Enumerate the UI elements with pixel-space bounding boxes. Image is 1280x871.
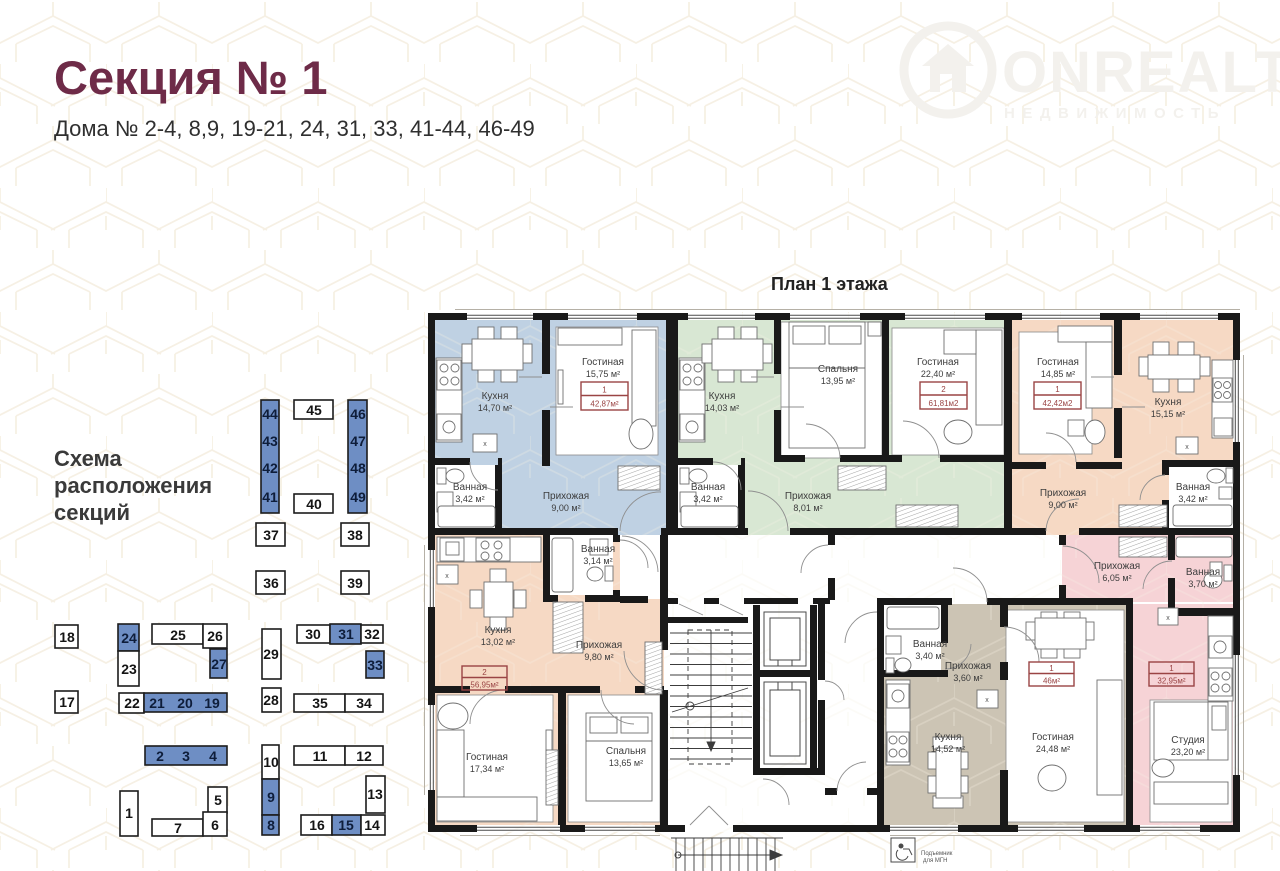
svg-text:3,70 м²: 3,70 м² xyxy=(1188,579,1217,589)
svg-text:47: 47 xyxy=(350,433,366,449)
svg-text:15,15 м²: 15,15 м² xyxy=(1151,409,1185,419)
svg-text:49: 49 xyxy=(350,489,366,505)
svg-text:x: x xyxy=(445,573,449,580)
svg-text:13,65 м²: 13,65 м² xyxy=(609,758,643,768)
svg-text:9: 9 xyxy=(267,789,275,805)
svg-text:9,00 м²: 9,00 м² xyxy=(1048,500,1077,510)
svg-text:24,48 м²: 24,48 м² xyxy=(1036,744,1070,754)
svg-text:3,42 м²: 3,42 м² xyxy=(1178,494,1207,504)
svg-text:22,40 м²: 22,40 м² xyxy=(921,369,955,379)
svg-text:x: x xyxy=(1185,444,1189,451)
svg-text:3,42 м²: 3,42 м² xyxy=(455,494,484,504)
svg-text:29: 29 xyxy=(263,646,279,662)
svg-text:3,42 м²: 3,42 м² xyxy=(693,494,722,504)
svg-text:8,01 м²: 8,01 м² xyxy=(793,503,822,513)
svg-text:56,95м²: 56,95м² xyxy=(470,681,499,690)
svg-text:2: 2 xyxy=(156,748,164,764)
svg-text:26: 26 xyxy=(207,628,223,644)
svg-text:x: x xyxy=(483,441,487,448)
svg-text:Гостиная: Гостиная xyxy=(1032,732,1074,743)
svg-text:1: 1 xyxy=(1169,664,1174,673)
svg-text:Студия: Студия xyxy=(1171,735,1204,746)
svg-text:Ванная: Ванная xyxy=(581,544,615,555)
svg-text:36: 36 xyxy=(263,575,279,591)
svg-text:1: 1 xyxy=(1049,664,1054,673)
svg-text:7: 7 xyxy=(174,820,182,836)
svg-text:Прихожая: Прихожая xyxy=(543,491,589,502)
svg-text:Гостиная: Гостиная xyxy=(582,357,624,368)
svg-text:14: 14 xyxy=(364,817,380,833)
svg-text:9,00 м²: 9,00 м² xyxy=(551,503,580,513)
svg-text:Секция № 1: Секция № 1 xyxy=(54,51,327,104)
svg-text:Ванная: Ванная xyxy=(453,482,487,493)
svg-text:НЕДВИЖИМОСТЬ: НЕДВИЖИМОСТЬ xyxy=(1004,105,1226,122)
svg-text:Ванная: Ванная xyxy=(913,639,947,650)
svg-text:x: x xyxy=(1166,615,1170,622)
svg-text:3: 3 xyxy=(182,748,190,764)
svg-text:15,75 м²: 15,75 м² xyxy=(586,369,620,379)
svg-text:13,02 м²: 13,02 м² xyxy=(481,637,515,647)
svg-text:План 1 этажа: План 1 этажа xyxy=(771,274,889,294)
svg-text:14,70 м²: 14,70 м² xyxy=(478,403,512,413)
svg-text:46м²: 46м² xyxy=(1043,677,1060,686)
svg-text:18: 18 xyxy=(59,629,75,645)
svg-text:15: 15 xyxy=(338,817,354,833)
svg-text:42,42м2: 42,42м2 xyxy=(1043,399,1074,408)
svg-text:Прихожая: Прихожая xyxy=(945,661,991,672)
svg-text:31: 31 xyxy=(338,626,354,642)
svg-text:Схема: Схема xyxy=(54,446,123,471)
svg-text:45: 45 xyxy=(306,402,322,418)
svg-text:3,40 м²: 3,40 м² xyxy=(915,651,944,661)
svg-text:1: 1 xyxy=(1055,385,1060,394)
svg-text:Ванная: Ванная xyxy=(1176,482,1210,493)
svg-text:1: 1 xyxy=(602,386,607,395)
svg-text:4: 4 xyxy=(209,748,217,764)
svg-text:Прихожая: Прихожая xyxy=(576,640,622,651)
svg-text:34: 34 xyxy=(356,695,372,711)
svg-text:9,80 м²: 9,80 м² xyxy=(584,652,613,662)
svg-text:32,95м²: 32,95м² xyxy=(1157,677,1186,686)
svg-text:Кухня: Кухня xyxy=(935,732,962,743)
svg-text:46: 46 xyxy=(350,406,366,422)
svg-text:27: 27 xyxy=(211,656,227,672)
svg-text:41: 41 xyxy=(262,489,278,505)
svg-text:Гостиная: Гостиная xyxy=(917,357,959,368)
svg-text:14,52 м²: 14,52 м² xyxy=(931,744,965,754)
svg-text:6: 6 xyxy=(211,817,219,833)
svg-text:21: 21 xyxy=(149,695,165,711)
svg-text:12: 12 xyxy=(356,748,372,764)
svg-text:14,85 м²: 14,85 м² xyxy=(1041,369,1075,379)
svg-text:20: 20 xyxy=(177,695,193,711)
svg-text:48: 48 xyxy=(350,460,366,476)
svg-text:43: 43 xyxy=(262,433,278,449)
svg-text:ONREALT: ONREALT xyxy=(1002,40,1280,105)
svg-text:Кухня: Кухня xyxy=(1155,397,1182,408)
svg-text:14,03 м²: 14,03 м² xyxy=(705,403,739,413)
svg-text:Спальня: Спальня xyxy=(818,364,858,375)
svg-text:Ванная: Ванная xyxy=(691,482,725,493)
svg-text:33: 33 xyxy=(367,657,383,673)
svg-text:17: 17 xyxy=(59,694,75,710)
svg-text:Спальня: Спальня xyxy=(606,746,646,757)
svg-text:13: 13 xyxy=(367,786,383,802)
svg-text:61,81м2: 61,81м2 xyxy=(929,399,960,408)
svg-text:6,05 м²: 6,05 м² xyxy=(1102,573,1131,583)
svg-text:32: 32 xyxy=(364,626,380,642)
svg-text:3,60 м²: 3,60 м² xyxy=(953,673,982,683)
svg-text:40: 40 xyxy=(306,496,322,512)
svg-text:Кухня: Кухня xyxy=(485,625,512,636)
svg-text:секций: секций xyxy=(54,500,130,525)
svg-text:2: 2 xyxy=(941,385,946,394)
svg-text:Гостиная: Гостиная xyxy=(1037,357,1079,368)
svg-text:28: 28 xyxy=(263,692,279,708)
svg-text:Подъемник: Подъемник xyxy=(921,851,953,857)
svg-text:44: 44 xyxy=(262,406,278,422)
svg-text:Дома № 2-4, 8,9, 19-21, 24, 31: Дома № 2-4, 8,9, 19-21, 24, 31, 33, 41-4… xyxy=(54,116,535,141)
svg-text:25: 25 xyxy=(170,627,186,643)
svg-text:16: 16 xyxy=(309,817,325,833)
svg-text:для МГН: для МГН xyxy=(923,858,948,864)
svg-text:Кухня: Кухня xyxy=(709,391,736,402)
svg-text:30: 30 xyxy=(305,626,321,642)
svg-text:42: 42 xyxy=(262,460,278,476)
svg-text:13,95 м²: 13,95 м² xyxy=(821,376,855,386)
svg-text:35: 35 xyxy=(312,695,328,711)
svg-text:22: 22 xyxy=(124,695,140,711)
svg-text:24: 24 xyxy=(121,630,137,646)
svg-text:10: 10 xyxy=(263,754,279,770)
svg-text:3,14 м²: 3,14 м² xyxy=(583,556,612,566)
svg-text:Прихожая: Прихожая xyxy=(1040,488,1086,499)
svg-text:38: 38 xyxy=(347,527,363,543)
svg-text:19: 19 xyxy=(204,695,220,711)
svg-text:2: 2 xyxy=(482,668,487,677)
svg-text:42,87м²: 42,87м² xyxy=(590,400,619,409)
svg-text:23,20 м²: 23,20 м² xyxy=(1171,747,1205,757)
svg-text:Гостиная: Гостиная xyxy=(466,752,508,763)
svg-text:8: 8 xyxy=(267,817,275,833)
svg-text:17,34 м²: 17,34 м² xyxy=(470,764,504,774)
svg-text:Прихожая: Прихожая xyxy=(785,491,831,502)
svg-text:37: 37 xyxy=(263,527,279,543)
svg-text:5: 5 xyxy=(214,792,222,808)
svg-text:23: 23 xyxy=(121,661,137,677)
svg-text:1: 1 xyxy=(125,805,133,821)
svg-text:Ванная: Ванная xyxy=(1186,567,1220,578)
svg-text:39: 39 xyxy=(347,575,363,591)
svg-text:11: 11 xyxy=(313,748,328,764)
svg-text:расположения: расположения xyxy=(54,473,212,498)
svg-text:Прихожая: Прихожая xyxy=(1094,561,1140,572)
svg-text:Кухня: Кухня xyxy=(482,391,509,402)
svg-text:x: x xyxy=(985,697,989,704)
